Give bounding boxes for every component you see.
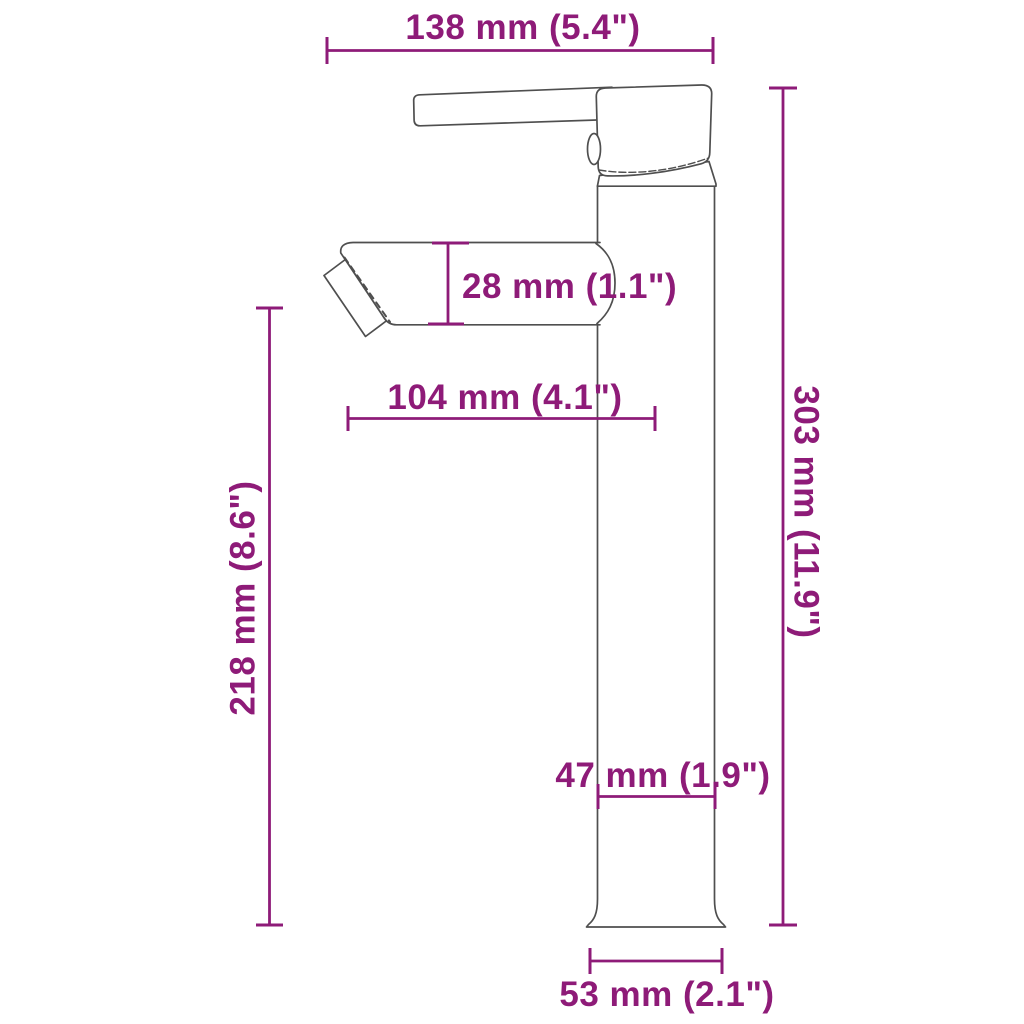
dim-label-body-width: 47 mm (1.9"): [555, 756, 770, 795]
dimension-total-height: 303 mm (11.9"): [769, 88, 826, 925]
diagram-canvas: 138 mm (5.4") 28 mm (1.1") 104 mm (4.1")…: [0, 0, 1024, 1024]
dimension-base-width: 53 mm (2.1"): [559, 948, 774, 1014]
faucet-outline: [324, 85, 726, 927]
dim-label-total-height: 303 mm (11.9"): [787, 385, 826, 638]
handle-pivot: [588, 134, 601, 165]
dim-label-spout-height: 28 mm (1.1"): [462, 267, 677, 306]
dim-label-spout-reach: 104 mm (4.1"): [387, 378, 622, 417]
handle-lever: [414, 87, 612, 126]
faucet-dimension-diagram: 138 mm (5.4") 28 mm (1.1") 104 mm (4.1")…: [0, 0, 1024, 1024]
dim-label-top-width: 138 mm (5.4"): [405, 8, 640, 47]
dim-label-spout-to-base: 218 mm (8.6"): [224, 480, 263, 715]
dimension-top-width: 138 mm (5.4"): [327, 8, 713, 64]
dimension-spout-to-base-height: 218 mm (8.6"): [224, 308, 284, 925]
dim-label-base-width: 53 mm (2.1"): [559, 975, 774, 1014]
